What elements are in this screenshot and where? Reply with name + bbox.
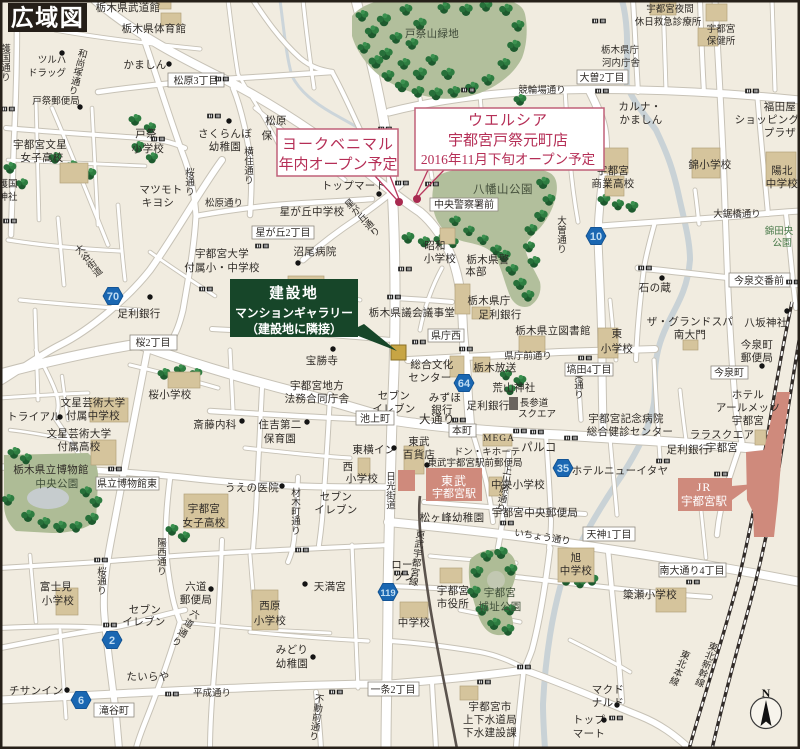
svg-text:県庁西: 県庁西 <box>431 329 461 342</box>
svg-text:商業高校: 商業高校 <box>591 177 634 190</box>
svg-text:建設地: 建設地 <box>269 284 319 302</box>
svg-text:トライアル: トライアル <box>7 411 61 423</box>
svg-text:中央小学校: 中央小学校 <box>491 478 545 491</box>
svg-text:付属高校: 付属高校 <box>57 440 100 453</box>
svg-text:総合健診センター: 総合健診センター <box>587 425 673 438</box>
svg-text:幼稚園: 幼稚園 <box>209 140 241 153</box>
svg-text:一条2丁目: 一条2丁目 <box>371 683 416 696</box>
svg-text:宇都宮中央郵便局: 宇都宮中央郵便局 <box>492 506 578 519</box>
svg-text:ホテルニューイタヤ: ホテルニューイタヤ <box>572 465 669 477</box>
svg-text:MEGA: MEGA <box>483 434 515 444</box>
svg-text:住吉第二: 住吉第二 <box>258 418 301 431</box>
svg-text:中央警察署前: 中央警察署前 <box>434 198 494 211</box>
svg-text:桜通り: 桜通り <box>97 566 107 597</box>
svg-text:栃木県立博物館: 栃木県立博物館 <box>13 463 89 476</box>
svg-text:マツモト: マツモト <box>139 185 182 196</box>
svg-text:沼尾病院: 沼尾病院 <box>293 245 336 258</box>
svg-text:セブン: セブン <box>378 389 410 402</box>
svg-text:10: 10 <box>590 231 602 243</box>
svg-text:宇都宮: 宇都宮 <box>732 414 764 427</box>
svg-text:宇都宮戸祭元町店: 宇都宮戸祭元町店 <box>448 132 568 149</box>
svg-text:ナルド: ナルド <box>592 697 624 709</box>
svg-text:陽西通り: 陽西通り <box>157 537 167 578</box>
svg-text:トップマート: トップマート <box>322 180 387 192</box>
svg-text:県立博物館東: 県立博物館東 <box>97 477 157 490</box>
svg-text:栃木放送: 栃木放送 <box>473 361 516 374</box>
svg-text:マート: マート <box>573 729 605 740</box>
svg-text:ツルハ: ツルハ <box>38 56 67 66</box>
svg-text:福田屋: 福田屋 <box>764 100 796 113</box>
svg-text:宇都宮市: 宇都宮市 <box>468 700 511 713</box>
svg-text:郵便局: 郵便局 <box>741 351 773 364</box>
svg-text:公園: 公園 <box>772 238 791 249</box>
svg-text:護国通り: 護国通り <box>1 43 11 84</box>
svg-text:たいらや: たいらや <box>126 671 169 683</box>
svg-text:旭: 旭 <box>571 552 582 564</box>
svg-text:東横イン: 東横イン <box>352 443 395 456</box>
svg-text:小学校: 小学校 <box>254 614 287 627</box>
svg-text:本部: 本部 <box>465 265 487 278</box>
svg-text:宇都宮文星: 宇都宮文星 <box>13 138 67 151</box>
svg-text:城址公園: 城址公園 <box>478 600 521 613</box>
svg-text:塙田4丁目: 塙田4丁目 <box>567 363 612 376</box>
svg-text:宇都宮記念病院: 宇都宮記念病院 <box>588 412 664 425</box>
svg-text:文星芸術大学: 文星芸術大学 <box>61 396 126 409</box>
svg-text:天満宮: 天満宮 <box>314 580 346 593</box>
svg-text:西原: 西原 <box>259 600 281 612</box>
svg-text:石の蔵: 石の蔵 <box>639 281 672 294</box>
svg-text:みずほ: みずほ <box>429 392 461 404</box>
svg-text:簗瀬小学校: 簗瀬小学校 <box>623 588 677 601</box>
svg-text:日光街道: 日光街道 <box>386 472 396 512</box>
svg-text:栃木県立図書館: 栃木県立図書館 <box>515 324 591 337</box>
svg-text:桜小学校: 桜小学校 <box>148 388 191 401</box>
svg-text:宇都宮夜間: 宇都宮夜間 <box>646 3 694 15</box>
svg-text:保育園: 保育園 <box>264 432 296 445</box>
svg-text:東: 東 <box>612 327 623 340</box>
svg-text:幼稚園: 幼稚園 <box>276 657 308 670</box>
svg-text:プラザ: プラザ <box>764 127 797 139</box>
svg-text:桜通り: 桜通り <box>185 167 195 198</box>
svg-text:足利銀行: 足利銀行 <box>117 307 160 320</box>
svg-text:星が丘2丁目: 星が丘2丁目 <box>256 226 311 239</box>
svg-text:滝谷町: 滝谷町 <box>99 705 129 717</box>
svg-text:斎藤内科: 斎藤内科 <box>193 418 236 431</box>
svg-text:休日救急診療所: 休日救急診療所 <box>635 16 702 28</box>
svg-text:2016年11月下旬オープン予定: 2016年11月下旬オープン予定 <box>421 152 595 167</box>
svg-text:東武: 東武 <box>408 435 430 448</box>
svg-text:八幡山公園: 八幡山公園 <box>473 182 533 196</box>
svg-text:今泉交番前: 今泉交番前 <box>734 274 784 287</box>
svg-text:市役所: 市役所 <box>437 597 470 610</box>
svg-text:かましん: かましん <box>619 114 662 126</box>
svg-text:マクド: マクド <box>592 684 624 696</box>
svg-text:足利銀行: 足利銀行 <box>666 443 709 456</box>
svg-text:カルナ・: カルナ・ <box>618 101 661 113</box>
svg-text:陽北: 陽北 <box>771 165 793 177</box>
svg-text:栃木県武道館: 栃木県武道館 <box>96 1 161 14</box>
svg-text:年内オープン予定: 年内オープン予定 <box>278 156 397 173</box>
svg-text:上下水道局: 上下水道局 <box>463 713 517 726</box>
svg-text:足利銀行: 足利銀行 <box>466 399 509 412</box>
svg-text:松原: 松原 <box>265 114 287 127</box>
svg-text:ララスクエア: ララスクエア <box>690 429 755 441</box>
svg-text:付属小・中学校: 付属小・中学校 <box>184 261 260 274</box>
svg-text:女子高校: 女子高校 <box>20 151 63 164</box>
svg-text:郵便局: 郵便局 <box>180 593 212 606</box>
svg-text:松ヶ峰幼稚園: 松ヶ峰幼稚園 <box>420 511 485 524</box>
svg-text:小学校: 小学校 <box>346 472 379 485</box>
svg-text:宇都宮: 宇都宮 <box>706 441 738 454</box>
svg-text:キヨシ: キヨシ <box>142 198 174 209</box>
svg-text:宇都宮駅: 宇都宮駅 <box>681 494 727 508</box>
svg-text:64: 64 <box>458 378 471 390</box>
svg-text:宇都宮: 宇都宮 <box>484 586 516 599</box>
svg-text:星が丘中学校: 星が丘中学校 <box>280 205 345 218</box>
svg-text:栃木県庁: 栃木県庁 <box>467 294 510 307</box>
svg-text:栃木県警: 栃木県警 <box>466 253 509 266</box>
svg-text:長参道: 長参道 <box>520 397 549 409</box>
svg-text:うえの医院: うえの医院 <box>225 481 279 494</box>
svg-text:さくらんぼ: さくらんぼ <box>198 128 252 140</box>
svg-text:松原通り: 松原通り <box>205 197 243 209</box>
svg-text:競輪場通り: 競輪場通り <box>518 84 566 96</box>
svg-text:広域図: 広域図 <box>11 5 85 31</box>
svg-text:総合文化: 総合文化 <box>410 358 453 371</box>
svg-text:2: 2 <box>109 635 115 647</box>
svg-text:中央公園: 中央公園 <box>35 477 78 490</box>
svg-text:小学校: 小学校 <box>132 142 165 155</box>
svg-text:ウエルシア: ウエルシア <box>468 112 548 129</box>
svg-text:南大門: 南大門 <box>674 328 706 341</box>
svg-text:本町: 本町 <box>452 424 472 437</box>
svg-text:今泉町: 今泉町 <box>741 338 774 351</box>
svg-text:横住通り: 横住通り <box>244 146 254 187</box>
svg-text:宇都宮: 宇都宮 <box>437 584 469 597</box>
svg-text:河内庁舎: 河内庁舎 <box>602 57 641 69</box>
svg-text:スクエア: スクエア <box>518 409 556 420</box>
svg-text:西: 西 <box>343 462 354 473</box>
svg-text:N: N <box>762 686 771 700</box>
svg-text:大曽通り: 大曽通り <box>557 215 567 256</box>
svg-text:女子高校: 女子高校 <box>182 516 225 529</box>
svg-text:付属中学校: 付属中学校 <box>66 409 120 422</box>
svg-text:栃木県体育館: 栃木県体育館 <box>122 22 187 35</box>
svg-text:小学校: 小学校 <box>42 594 75 607</box>
svg-text:宇都宮大学: 宇都宮大学 <box>195 247 249 260</box>
svg-text:70: 70 <box>107 291 119 303</box>
svg-text:パルコ: パルコ <box>521 441 557 454</box>
svg-text:南大通り4丁目: 南大通り4丁目 <box>660 564 725 577</box>
svg-text:栃木県議会議事堂: 栃木県議会議事堂 <box>369 306 455 319</box>
svg-text:ホテル: ホテル <box>732 389 764 401</box>
svg-text:ドラッグ: ドラッグ <box>28 67 67 79</box>
svg-text:JR: JR <box>697 480 712 494</box>
svg-text:錦田央: 錦田央 <box>765 225 794 237</box>
svg-text:セブン: セブン <box>320 490 352 503</box>
svg-text:セブン: セブン <box>129 603 161 616</box>
svg-text:平成通り: 平成通り <box>193 687 231 699</box>
svg-text:宇都宮: 宇都宮 <box>188 502 220 515</box>
svg-text:荒山神社: 荒山神社 <box>492 381 535 394</box>
svg-text:文星芸術大学: 文星芸術大学 <box>47 427 112 440</box>
svg-text:イレブン: イレブン <box>314 503 357 516</box>
svg-text:チサンイン: チサンイン <box>9 685 63 697</box>
svg-text:35: 35 <box>557 463 569 475</box>
svg-text:保: 保 <box>262 129 273 142</box>
svg-text:材木町通り: 材木町通り <box>291 487 301 537</box>
svg-text:六道: 六道 <box>185 580 207 593</box>
svg-text:ショッピング: ショッピング <box>735 113 800 126</box>
svg-text:（建設地に隣接）: （建設地に隣接） <box>246 321 342 336</box>
svg-text:イレブン: イレブン <box>122 615 165 628</box>
svg-text:錦小学校: 錦小学校 <box>688 158 731 171</box>
svg-text:保健所: 保健所 <box>707 35 736 47</box>
svg-text:法務合同庁舎: 法務合同庁舎 <box>285 392 350 405</box>
svg-text:宇都宮駅: 宇都宮駅 <box>432 486 476 500</box>
svg-text:中学校: 中学校 <box>560 564 593 577</box>
svg-text:小学校: 小学校 <box>424 252 457 265</box>
svg-text:小学校: 小学校 <box>601 342 634 355</box>
svg-text:トップ: トップ <box>573 714 606 726</box>
svg-text:かましん: かましん <box>123 59 166 71</box>
svg-text:ロー: ロー <box>391 560 413 571</box>
svg-text:大鋸橋通り: 大鋸橋通り <box>713 208 761 220</box>
svg-text:ザ・グランドスパ: ザ・グランドスパ <box>647 315 734 328</box>
svg-text:東武: 東武 <box>441 474 467 488</box>
svg-text:桜2丁目: 桜2丁目 <box>136 336 171 349</box>
svg-text:中学校: 中学校 <box>766 177 799 190</box>
svg-text:今泉町: 今泉町 <box>714 366 744 379</box>
svg-text:宝勝寺: 宝勝寺 <box>306 354 338 367</box>
svg-text:ドン・キホーテ: ドン・キホーテ <box>454 447 521 458</box>
svg-text:昭和: 昭和 <box>424 240 446 252</box>
svg-text:マンションギャラリー: マンションギャラリー <box>235 306 353 320</box>
svg-text:戸祭山緑地: 戸祭山緑地 <box>405 27 459 40</box>
svg-text:富士見: 富士見 <box>40 580 73 593</box>
svg-text:大曽2丁目: 大曽2丁目 <box>580 71 625 84</box>
svg-text:宇都宮地方: 宇都宮地方 <box>290 379 344 392</box>
svg-text:119: 119 <box>380 588 395 599</box>
svg-text:アールメッツ: アールメッツ <box>716 403 780 414</box>
svg-text:栃木県庁: 栃木県庁 <box>601 44 640 56</box>
svg-text:県庁前通り: 県庁前通り <box>504 350 552 362</box>
svg-text:宇都宮: 宇都宮 <box>707 23 736 35</box>
svg-text:東武宇都宮駅前郵便局: 東武宇都宮駅前郵便局 <box>427 457 522 469</box>
svg-text:池上町: 池上町 <box>360 412 390 425</box>
svg-text:足利銀行: 足利銀行 <box>478 308 521 321</box>
svg-text:中学校: 中学校 <box>398 616 431 629</box>
svg-text:6: 6 <box>78 695 84 707</box>
svg-text:下水建設課: 下水建設課 <box>463 726 517 739</box>
svg-text:ヨークベニマル: ヨークベニマル <box>282 136 394 153</box>
svg-text:みどり: みどり <box>276 644 308 656</box>
svg-text:八坂神社: 八坂神社 <box>744 316 787 329</box>
svg-text:センター: センター <box>408 372 451 384</box>
svg-text:天神1丁目: 天神1丁目 <box>587 528 632 541</box>
svg-text:松原3丁目: 松原3丁目 <box>174 74 219 87</box>
